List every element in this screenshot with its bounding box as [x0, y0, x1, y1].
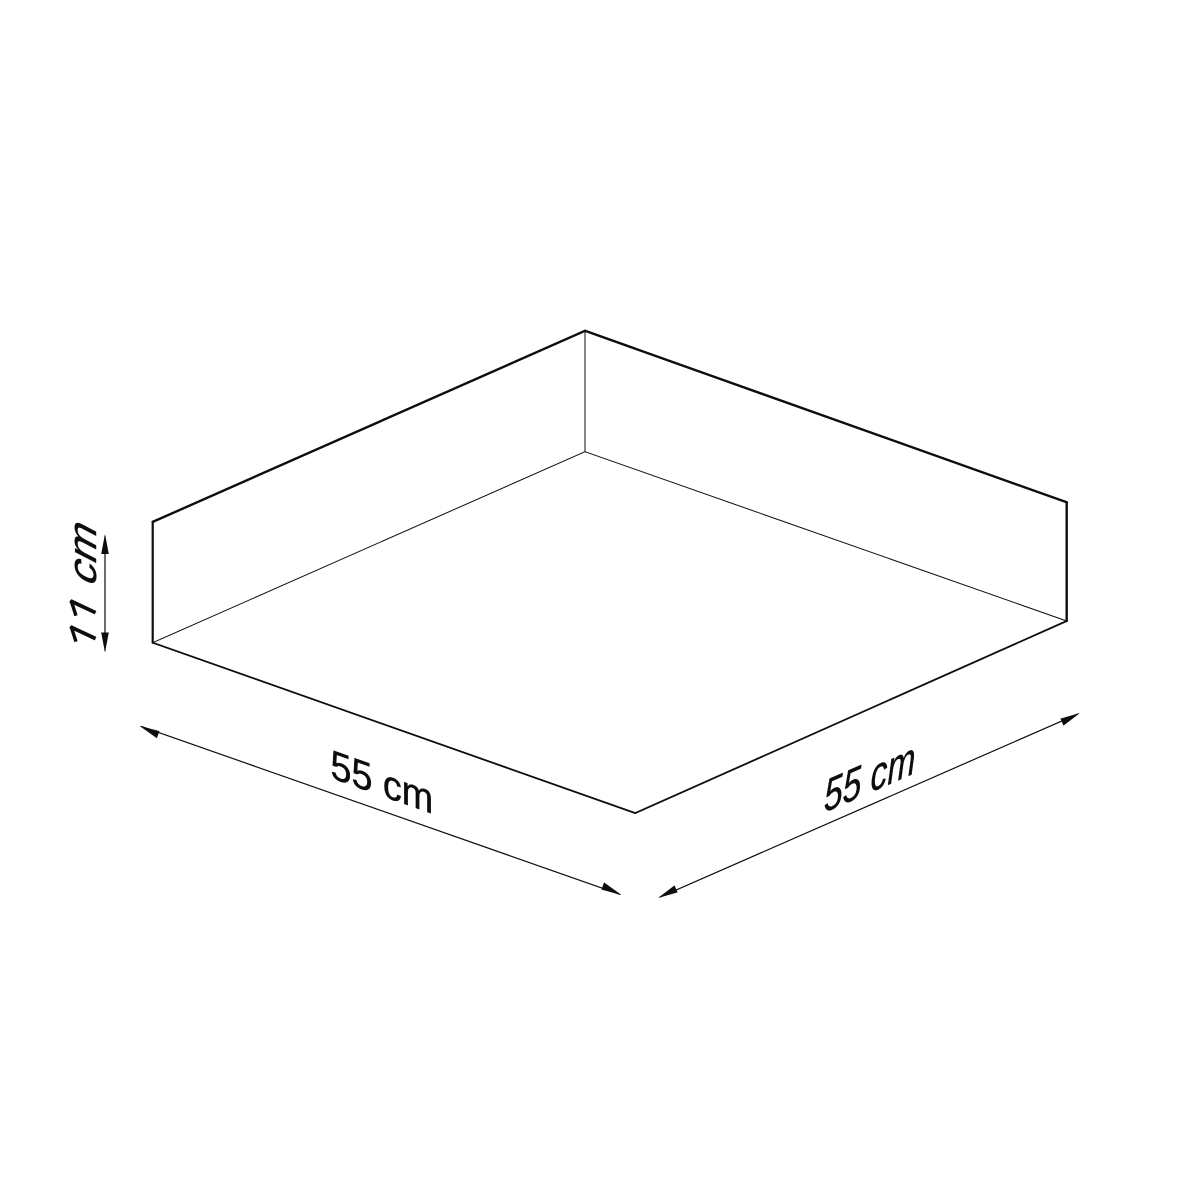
svg-text:cm: cm	[62, 511, 105, 593]
svg-text:55 cm: 55 cm	[824, 731, 915, 823]
